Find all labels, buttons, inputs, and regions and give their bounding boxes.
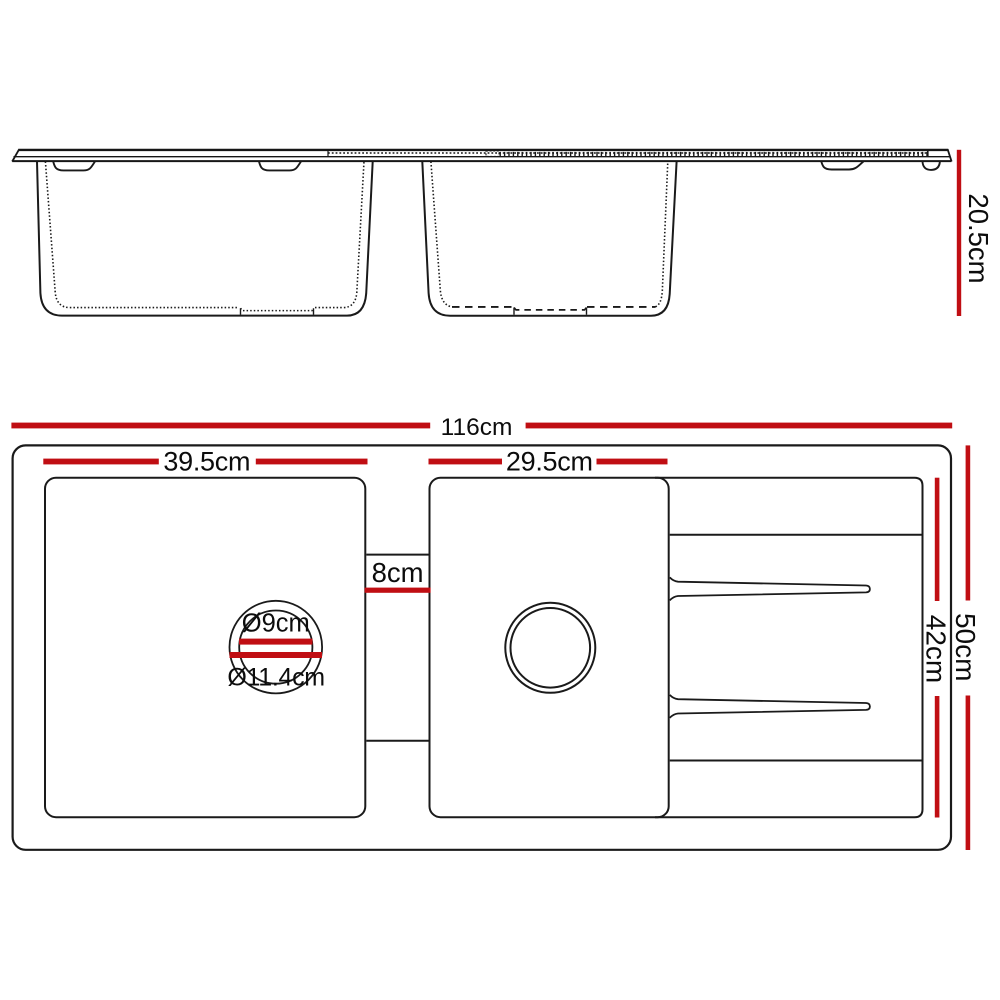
svg-text:116cm: 116cm xyxy=(441,414,513,441)
svg-text:Ø9cm: Ø9cm xyxy=(242,610,310,638)
svg-text:50cm: 50cm xyxy=(950,613,981,681)
svg-text:42cm: 42cm xyxy=(921,615,952,683)
svg-text:Ø11.4cm: Ø11.4cm xyxy=(227,664,324,692)
svg-text:8cm: 8cm xyxy=(372,557,424,588)
svg-text:20.5cm: 20.5cm xyxy=(963,193,994,283)
svg-text:29.5cm: 29.5cm xyxy=(506,446,593,476)
svg-text:39.5cm: 39.5cm xyxy=(163,446,250,476)
